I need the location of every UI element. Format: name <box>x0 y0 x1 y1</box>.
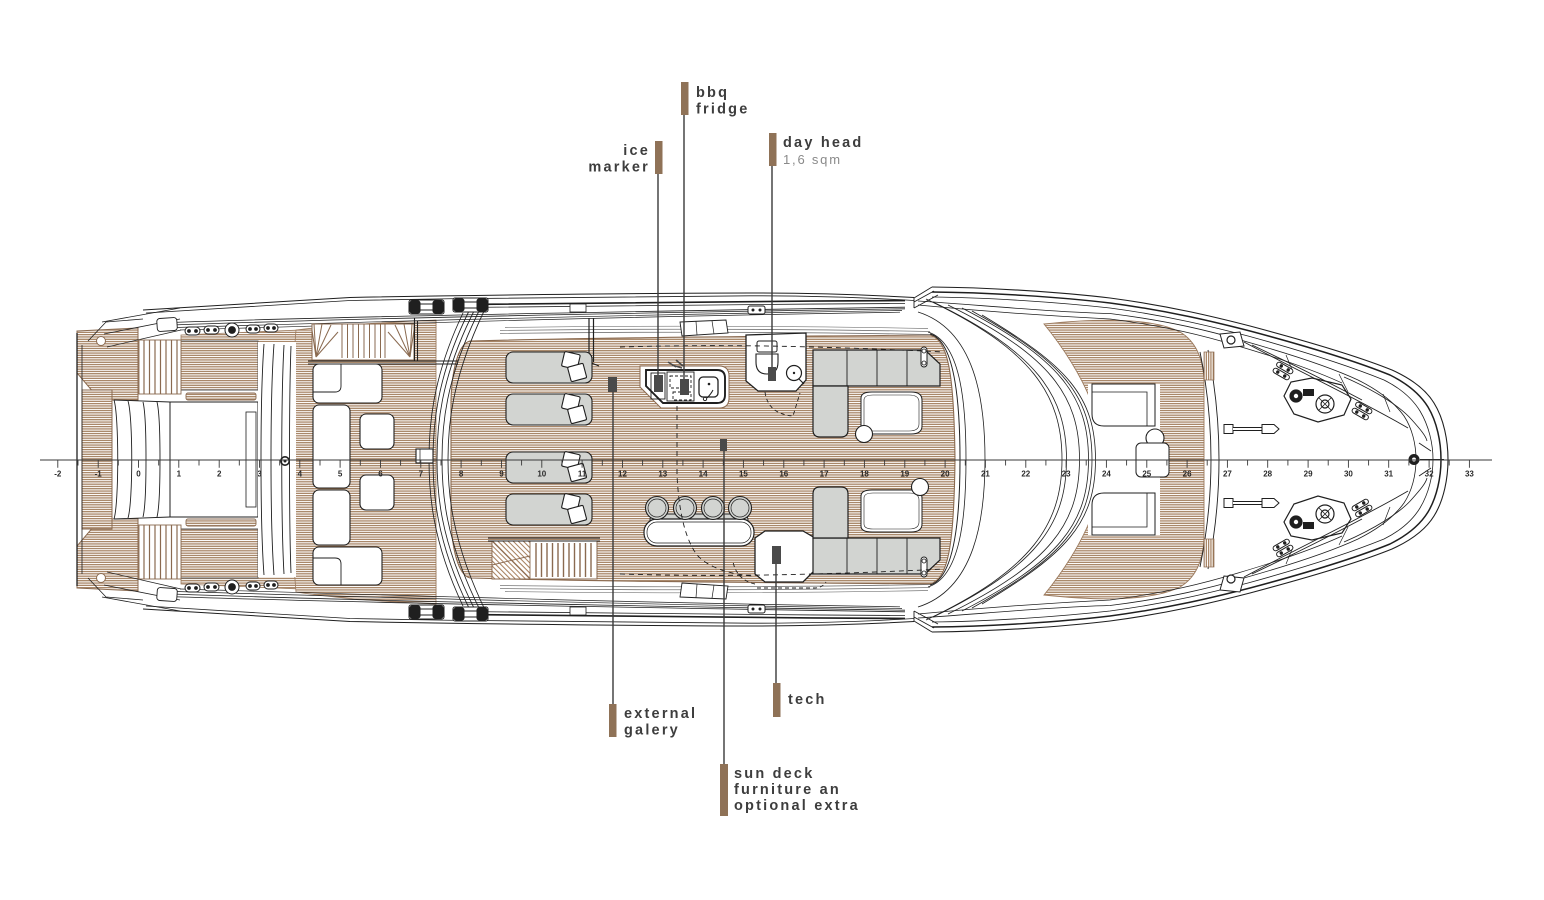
svg-text:27: 27 <box>1223 470 1232 479</box>
svg-text:6: 6 <box>378 470 383 479</box>
svg-text:-1: -1 <box>95 470 103 479</box>
svg-text:32: 32 <box>1425 470 1434 479</box>
svg-text:external: external <box>624 706 697 722</box>
svg-text:15: 15 <box>739 470 748 479</box>
svg-text:13: 13 <box>658 470 667 479</box>
svg-text:4: 4 <box>298 470 303 479</box>
svg-text:11: 11 <box>578 470 587 479</box>
svg-text:2: 2 <box>217 470 222 479</box>
svg-text:1,6 sqm: 1,6 sqm <box>783 152 842 167</box>
svg-text:22: 22 <box>1021 470 1030 479</box>
svg-text:29: 29 <box>1304 470 1313 479</box>
svg-text:14: 14 <box>699 470 708 479</box>
svg-text:25: 25 <box>1142 470 1151 479</box>
svg-text:21: 21 <box>981 470 990 479</box>
svg-text:optional extra: optional extra <box>734 798 860 814</box>
svg-text:-2: -2 <box>54 470 62 479</box>
svg-text:10: 10 <box>537 470 546 479</box>
svg-text:galery: galery <box>624 723 680 739</box>
svg-text:17: 17 <box>820 470 829 479</box>
svg-text:8: 8 <box>459 470 464 479</box>
svg-text:16: 16 <box>779 470 788 479</box>
svg-text:31: 31 <box>1384 470 1393 479</box>
svg-text:18: 18 <box>860 470 869 479</box>
svg-text:day head: day head <box>783 135 863 151</box>
svg-text:12: 12 <box>618 470 627 479</box>
svg-text:1: 1 <box>177 470 182 479</box>
svg-text:fridge: fridge <box>696 102 749 118</box>
svg-text:3: 3 <box>257 470 262 479</box>
svg-text:26: 26 <box>1183 470 1192 479</box>
svg-text:5: 5 <box>338 470 343 479</box>
svg-text:19: 19 <box>900 470 909 479</box>
svg-text:20: 20 <box>941 470 950 479</box>
svg-text:23: 23 <box>1062 470 1071 479</box>
svg-text:0: 0 <box>136 470 141 479</box>
svg-text:30: 30 <box>1344 470 1353 479</box>
svg-text:9: 9 <box>499 470 504 479</box>
svg-text:24: 24 <box>1102 470 1111 479</box>
svg-text:marker: marker <box>588 160 650 176</box>
svg-text:7: 7 <box>419 470 424 479</box>
svg-text:furniture an: furniture an <box>734 782 841 798</box>
svg-text:sun deck: sun deck <box>734 766 814 782</box>
svg-text:tech: tech <box>788 692 827 708</box>
svg-text:ice: ice <box>623 143 650 159</box>
svg-text:28: 28 <box>1263 470 1272 479</box>
svg-text:33: 33 <box>1465 470 1474 479</box>
svg-text:bbq: bbq <box>696 85 729 101</box>
